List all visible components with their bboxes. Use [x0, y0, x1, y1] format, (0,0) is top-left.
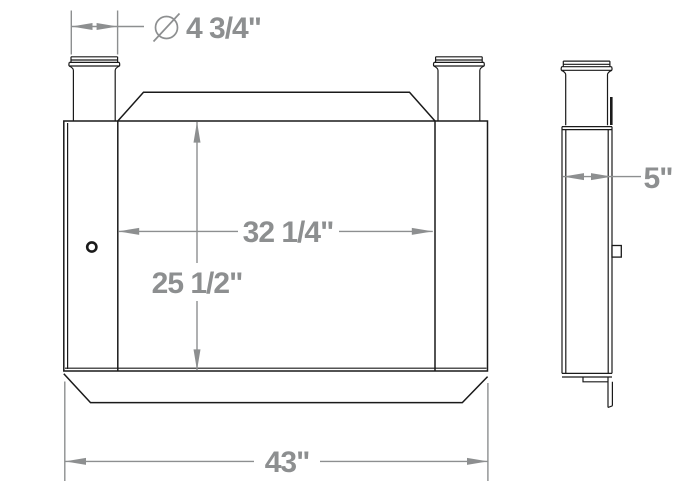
dim-overall-width-label: 43"	[265, 446, 310, 479]
dim-neck-diameter-arrow-right	[97, 23, 118, 30]
dim-core-width-arrow-left	[118, 228, 139, 235]
dim-core-height-arrow-top	[194, 122, 201, 143]
front-top-tank	[118, 92, 435, 121]
dimensions: 4 3/4" 32 1/4" 25 1/2" 43"	[65, 11, 673, 482]
technical-drawing: 4 3/4" 32 1/4" 25 1/2" 43"	[0, 0, 697, 487]
dim-neck-diameter-label: 4 3/4"	[186, 12, 261, 45]
dim-neck-diameter-arrow-left	[72, 23, 93, 30]
side-tab	[612, 246, 621, 258]
dim-neck-diameter-extension-lines	[71, 11, 117, 55]
dim-core-height-arrow-bottom	[194, 349, 201, 370]
dim-neck-diameter: 4 3/4"	[71, 11, 261, 55]
side-view	[561, 61, 621, 407]
front-bottom-tank	[64, 374, 488, 403]
side-body-left-edge	[562, 127, 566, 374]
front-right-neck	[433, 57, 484, 121]
dim-overall-width-arrow-left	[65, 458, 86, 465]
diameter-symbol-icon	[154, 14, 180, 42]
front-mount-hole	[87, 242, 96, 251]
dim-depth-label: 5"	[644, 162, 673, 195]
dim-overall-width: 43"	[65, 382, 488, 482]
dim-core-height-label: 25 1/2"	[152, 267, 243, 300]
dim-core-width: 32 1/4"	[118, 216, 433, 249]
dim-core-width-arrow-right	[412, 228, 433, 235]
side-body-bottom	[562, 373, 612, 377]
side-body-top	[562, 127, 612, 130]
dim-depth-arrow-right	[591, 173, 612, 180]
dim-core-width-label: 32 1/4"	[243, 216, 334, 249]
dim-overall-width-arrow-right	[467, 458, 488, 465]
side-neck	[561, 61, 612, 125]
front-left-neck	[69, 57, 120, 121]
dim-depth: 5"	[563, 162, 672, 195]
dim-core-height: 25 1/2"	[152, 122, 243, 371]
side-bottom-bracket	[583, 377, 612, 408]
